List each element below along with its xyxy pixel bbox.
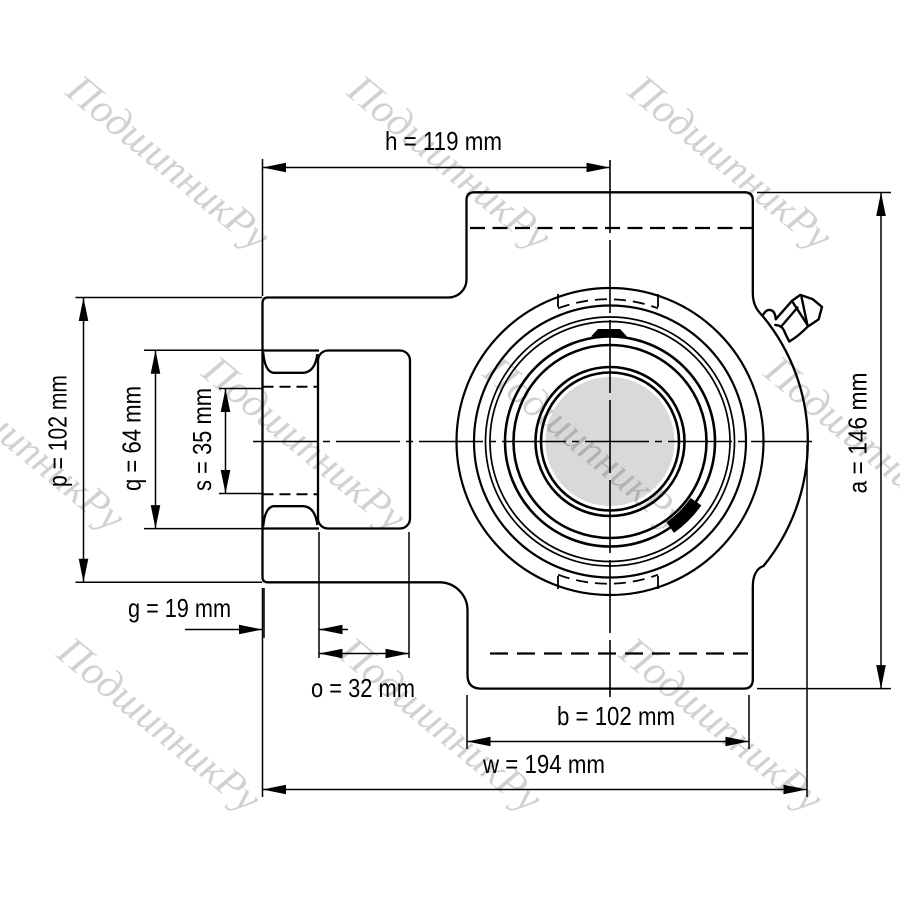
svg-text:q = 64 mm: q = 64 mm (119, 386, 147, 491)
svg-text:o = 32 mm: o = 32 mm (311, 675, 415, 703)
svg-text:w = 194 mm: w = 194 mm (482, 751, 605, 779)
svg-text:h = 119 mm: h = 119 mm (385, 128, 502, 156)
svg-text:b = 102 mm: b = 102 mm (557, 703, 675, 731)
svg-text:g = 19 mm: g = 19 mm (128, 595, 231, 623)
svg-text:a = 146 mm: a = 146 mm (845, 373, 873, 494)
svg-text:p = 102 mm: p = 102 mm (45, 375, 73, 487)
svg-text:s = 35 mm: s = 35 mm (189, 388, 217, 491)
